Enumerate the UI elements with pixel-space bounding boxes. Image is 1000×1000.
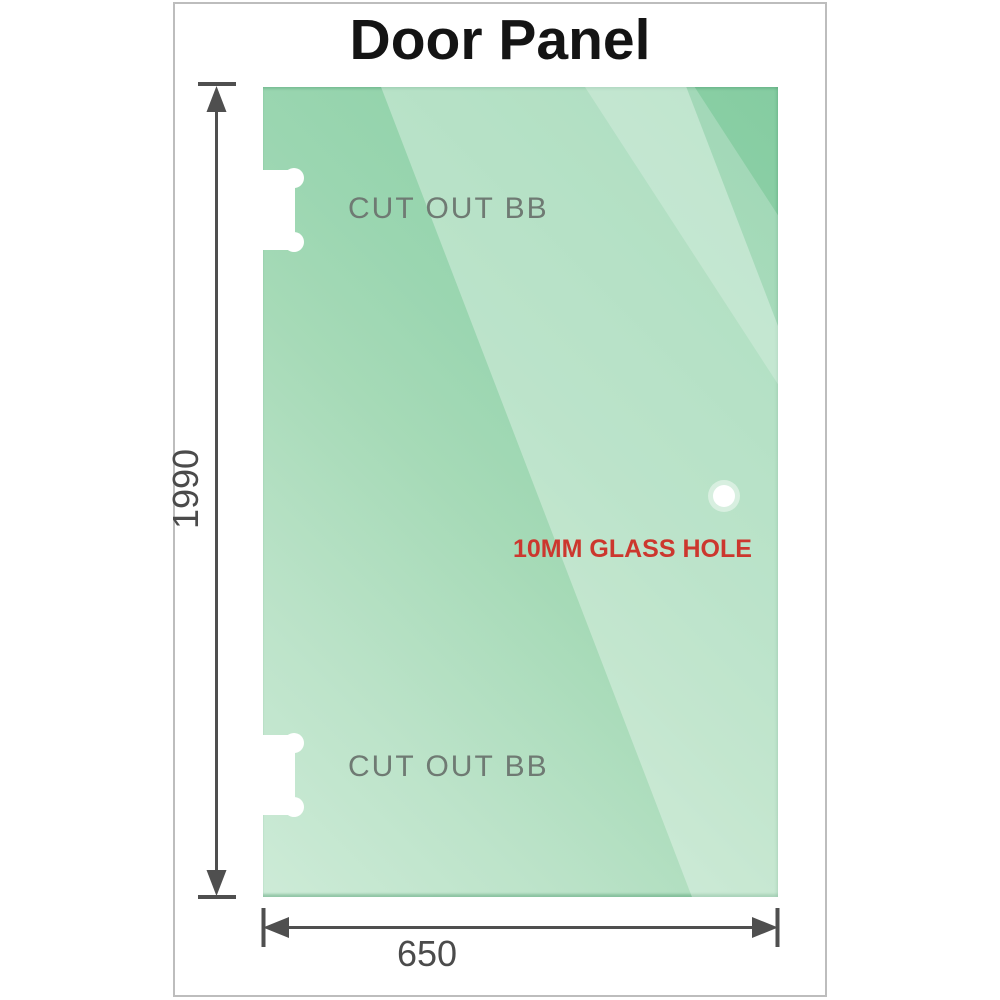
glass-hole <box>708 480 740 512</box>
glass-hole-label: 10MM GLASS HOLE <box>513 534 708 564</box>
glass-hole-center <box>713 485 735 507</box>
glass-panel: CUT OUT BB CUT OUT BB 10MM GLASS HOLE <box>263 87 778 897</box>
cutout-top-label: CUT OUT BB <box>348 191 549 227</box>
hinge-cutout-shape-icon <box>263 166 309 254</box>
hinge-cutout-top <box>263 166 309 254</box>
page-title: Door Panel <box>173 10 827 70</box>
height-dimension-label: 1990 <box>156 454 216 524</box>
width-dimension-label: 650 <box>377 933 477 975</box>
hinge-cutout-shape-icon <box>263 731 309 819</box>
cutout-bottom-label: CUT OUT BB <box>348 749 549 785</box>
door-panel-diagram: Door Panel CUT OUT BB CUT <box>0 0 1000 1000</box>
hinge-cutout-bottom <box>263 731 309 819</box>
